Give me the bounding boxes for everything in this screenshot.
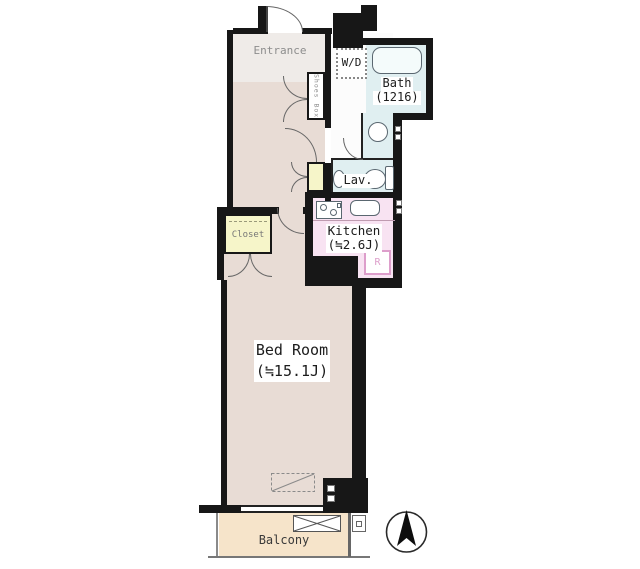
kitchen-counter-edge — [313, 220, 395, 221]
ac-unit-box — [293, 515, 341, 532]
wall — [227, 30, 233, 207]
wall — [221, 505, 241, 513]
wall — [305, 256, 358, 286]
meter-box — [396, 208, 402, 214]
toilet-tank — [385, 166, 394, 190]
drain-mark — [356, 521, 362, 527]
wall-stub — [199, 505, 223, 513]
bedroom-name: Bed Room — [254, 340, 330, 361]
bath-name: Bath — [381, 77, 414, 91]
wall — [217, 207, 224, 280]
wall — [358, 278, 402, 288]
closet-rod — [229, 221, 267, 222]
balcony-divider — [348, 513, 351, 557]
wall-pillar — [361, 5, 377, 31]
counter-dashed-box — [271, 473, 315, 492]
balcony-label: Balcony — [239, 534, 329, 548]
meter-box — [395, 134, 401, 140]
entrance-label: Entrance — [238, 45, 322, 58]
wall — [311, 192, 395, 198]
bathtub-icon — [372, 47, 422, 74]
burner — [330, 209, 337, 216]
wall — [426, 40, 433, 120]
washbasin-icon — [368, 122, 388, 142]
bedroom-size: (≒15.1J) — [254, 361, 330, 382]
bedroom-label: Bed Room (≒15.1J) — [232, 340, 352, 382]
meter-box — [396, 200, 402, 206]
closet: Closet — [224, 214, 272, 254]
bath-label: Bath (1216) — [369, 77, 425, 105]
wall — [221, 280, 227, 513]
washer-dryer-label: W/D — [342, 57, 362, 70]
kitchen-sink-icon — [350, 200, 380, 216]
wall — [325, 33, 331, 128]
entrance-door-arc — [266, 6, 303, 32]
balcony-fence-bottom — [208, 556, 370, 558]
window — [241, 505, 323, 513]
hall-cabinet — [307, 162, 325, 192]
lavatory-label: Lav. — [338, 174, 378, 188]
floor-plan: Shoes Box Closet W/D R — [0, 0, 640, 569]
grill — [337, 203, 341, 208]
wall-pillar — [333, 13, 363, 48]
balcony-fence-left — [216, 513, 218, 557]
lavatory-name: Lav. — [342, 174, 375, 188]
kitchen-label: Kitchen (≒2.6J) — [309, 224, 399, 253]
meter-box — [395, 126, 401, 132]
washer-dryer-box: W/D — [336, 48, 367, 79]
shoes-box-label: Shoes Box — [309, 74, 323, 118]
balcony-name: Balcony — [257, 534, 312, 548]
burner — [320, 204, 327, 211]
closet-label: Closet — [226, 230, 270, 240]
pipe-space-box — [327, 485, 335, 492]
kitchen-size: (≒2.6J) — [326, 238, 383, 252]
shoes-box: Shoes Box — [307, 72, 325, 120]
kitchen-name: Kitchen — [326, 224, 383, 238]
bath-size: (1216) — [373, 91, 420, 105]
refrigerator-label: R — [374, 257, 380, 268]
north-compass-icon — [384, 506, 429, 554]
drain-box — [352, 515, 366, 532]
stove-icon — [316, 201, 342, 219]
pipe-space-box — [327, 495, 335, 502]
wall — [361, 38, 433, 45]
refrigerator-box: R — [364, 250, 391, 275]
wall — [217, 207, 279, 214]
